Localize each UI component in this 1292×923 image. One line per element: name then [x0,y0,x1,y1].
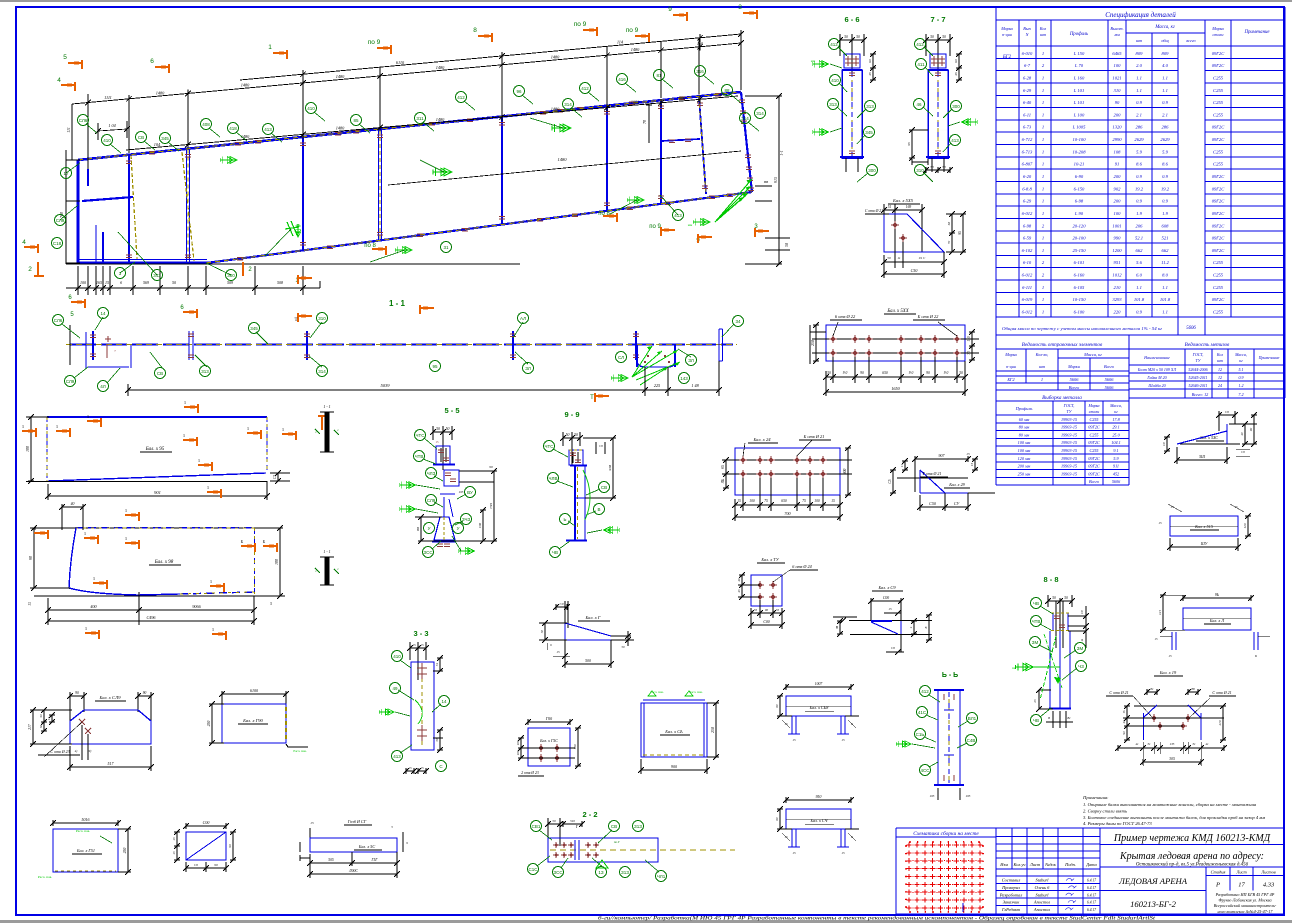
svg-text:20-120: 20-120 [1072,223,1086,228]
svg-text:2. Сварку стали взять: 2. Сварку стали взять [1083,808,1127,813]
svg-text:Примечание: Примечание [1244,30,1271,35]
svg-text:В1: В1 [1067,716,1071,720]
svg-text:100: 100 [1114,63,1122,68]
svg-text:Всероссийский машиностроитель-: Всероссийский машиностроитель- [1214,903,1277,908]
svg-text:Гозб Ø СГ: Гозб Ø СГ [347,819,367,824]
svg-text:15: 15 [172,837,176,841]
svg-text:1: 1 [207,485,209,490]
svg-text:50: 50 [446,427,450,431]
svg-text:4.33: 4.33 [1263,882,1275,889]
svg-text:09Г2С: 09Г2С [1212,236,1226,241]
svg-text:Фрунзе-Лабинская ул. Москва: Фрунзе-Лабинская ул. Москва [1218,898,1271,903]
svg-text:902: 902 [1114,186,1122,191]
svg-text:по 9: по 9 [368,39,381,46]
svg-text:4. Размеры даны по ГОСТ 26.47-: 4. Размеры даны по ГОСТ 26.47-73 [1083,821,1152,826]
svg-text:09Г2С: 09Г2С [1212,211,1226,216]
svg-text:Болт М20 х 50 109 ХЛ: Болт М20 х 50 109 ХЛ [1137,367,1176,372]
svg-text:1480: 1480 [436,117,445,122]
svg-text:135: 135 [1170,742,1175,746]
svg-text:б-012: б-012 [1022,273,1033,278]
svg-text:1.9: 1.9 [1162,211,1168,216]
svg-text:по 8: по 8 [364,243,376,249]
svg-text:С255: С255 [1213,149,1224,154]
svg-text:мм: мм [688,223,693,227]
svg-text:1.1: 1.1 [1162,76,1168,81]
svg-text:110: 110 [967,336,971,341]
svg-text:40: 40 [1240,432,1244,436]
svg-text:Изм: Изм [999,862,1008,867]
svg-text:286: 286 [1136,125,1144,130]
svg-text:б-7: б-7 [1024,63,1031,68]
svg-text:40: 40 [71,502,75,506]
svg-text:50: 50 [827,371,831,375]
svg-text:Вып: Вып [1023,26,1031,31]
svg-text:п-ции: п-ции [1002,32,1012,37]
svg-text:В: В [597,507,600,512]
svg-text:915: 915 [773,177,778,183]
svg-text:1: 1 [1042,310,1044,315]
svg-text:413: 413 [951,138,959,143]
svg-text:412: 412 [457,95,465,100]
svg-text:СЛ9: СЛ9 [66,379,75,384]
svg-text:95: 95 [432,364,438,369]
svg-text:990: 990 [1114,236,1122,241]
svg-text:3: 3 [738,4,742,11]
svg-text:ЧЛ1: ЧЛ1 [657,874,666,879]
svg-text:206: 206 [1136,223,1144,228]
svg-text:108: 108 [1114,149,1122,154]
svg-text:Проверил: Проверил [1001,885,1020,890]
svg-text:09Г2С: 09Г2С [1088,471,1100,476]
svg-text:300: 300 [952,104,960,109]
svg-text:11.2: 11.2 [1161,260,1169,265]
svg-text:С1С: С1С [528,867,538,872]
svg-text:Т: Т [294,318,297,323]
svg-text:6110: 6110 [396,60,405,65]
svg-text:15: 15 [792,851,796,855]
svg-text:19.2: 19.2 [1161,186,1170,191]
svg-text:410: 410 [103,138,111,143]
svg-text:15: 15 [966,452,970,456]
svg-text:1.1: 1.1 [1162,310,1168,315]
svg-text:Бал. х Г90: Бал. х Г90 [242,718,263,723]
svg-text:5Ш: 5Ш [1199,455,1206,459]
svg-text:Бал. х СЛ9: Бал. х СЛ9 [98,695,121,700]
svg-text:9 - 9: 9 - 9 [564,410,579,419]
svg-text:50: 50 [435,738,439,742]
svg-text:1: 1 [1042,112,1044,117]
svg-text:1: 1 [198,458,200,463]
svg-text:Расч. пов.: Расч. пов. [689,690,703,694]
svg-text:169: 169 [906,205,912,209]
svg-text:5016: 5016 [82,817,90,822]
svg-text:15: 15 [412,643,416,647]
svg-text:0.9: 0.9 [1162,199,1168,204]
svg-text:85: 85 [353,118,359,123]
svg-text:1: 1 [1042,186,1044,191]
svg-text:мм: мм [811,59,816,63]
svg-text:313: 313 [866,104,874,109]
svg-text:С00: С00 [763,620,769,624]
svg-text:б-713: б-713 [1022,149,1033,154]
svg-text:50: 50 [172,280,176,285]
svg-text:Л00С: Л00С [348,869,358,873]
svg-text:Марка: Марка [1087,403,1099,408]
svg-text:Апостол: Апостол [1033,900,1050,905]
svg-text:09Г2С: 09Г2С [1212,125,1226,130]
svg-text:Всего: Всего [1104,364,1114,369]
svg-text:11: 11 [897,256,900,260]
svg-text:L 1005: L 1005 [1072,125,1087,130]
svg-text:314: 314 [741,116,749,121]
svg-text:111: 111 [66,127,71,132]
svg-text:17: 17 [1238,882,1245,889]
svg-text:ЗЛ: ЗЛ [525,366,531,371]
svg-text:1: 1 [1042,51,1044,56]
svg-text:34: 34 [735,319,741,324]
svg-text:90: 90 [1115,100,1120,105]
svg-text:6 - 6: 6 - 6 [844,15,859,24]
svg-text:6.4.17: 6.4.17 [1087,893,1096,897]
svg-text:5.9: 5.9 [1162,149,1168,154]
svg-text:411: 411 [917,62,925,67]
svg-text:250: 250 [123,848,127,854]
svg-text:104.1: 104.1 [1111,440,1120,445]
svg-text:105: 105 [966,794,971,798]
svg-text:Бал. х С9: Бал. х С9 [877,585,896,590]
svg-text:Лист: Лист [1235,870,1246,875]
svg-text:1: 1 [1042,236,1044,241]
svg-text:46: 46 [916,102,922,107]
svg-text:210: 210 [1218,720,1222,725]
svg-text:1: 1 [268,44,272,51]
svg-text:6 отв Ø 24: 6 отв Ø 24 [792,564,811,569]
svg-text:343: 343 [153,273,161,278]
svg-text:Выборка металла: Выборка металла [1042,394,1082,401]
svg-text:п-ции: п-ции [1006,364,1016,369]
svg-text:9 0: 9 0 [843,371,848,375]
svg-text:1.1: 1.1 [1162,285,1168,290]
svg-text:Разработал: Разработал [999,892,1023,897]
svg-text:412: 412 [916,42,924,47]
svg-text:143: 143 [680,376,688,381]
svg-text:1.2: 1.2 [1239,383,1244,388]
svg-text:50: 50 [785,243,789,247]
svg-text:С96: С96 [478,522,482,528]
svg-text:96: 96 [516,89,522,94]
svg-text:Крытая ледовая арена по адресу: Крытая ледовая арена по адресу: [1119,851,1264,862]
svg-text:6-98: 6-98 [1075,199,1084,204]
svg-text:1: 1 [1042,174,1044,179]
svg-text:по 9: по 9 [626,27,639,34]
svg-text:165: 165 [96,280,102,285]
svg-text:41: 41 [1205,742,1209,746]
svg-text:2 отв Ø 23: 2 отв Ø 23 [521,771,539,775]
svg-text:N: N [1025,32,1029,37]
svg-text:ЗМ: ЗМ [1032,640,1039,645]
svg-text:505: 505 [328,858,334,862]
svg-text:1: 1 [1042,285,1044,290]
svg-text:510: 510 [570,819,575,823]
svg-text:ЧЛВ: ЧЛВ [549,476,558,481]
svg-text:С255: С255 [1213,260,1224,265]
svg-text:1: 1 [84,531,86,536]
svg-text:5039: 5039 [381,383,391,388]
svg-text:452: 452 [1113,471,1119,476]
svg-text:С00: С00 [203,820,210,825]
svg-text:700: 700 [784,511,791,516]
svg-text:120 мм: 120 мм [1018,456,1031,461]
svg-text:19903-15: 19903-15 [1061,432,1077,437]
svg-text:В: В [1048,716,1050,720]
svg-text:ГлРедакт: ГлРедакт [1001,907,1020,912]
svg-text:210: 210 [1114,285,1122,290]
svg-text:608: 608 [1162,223,1170,228]
svg-text:1 48: 1 48 [691,383,699,388]
svg-text:9066: 9066 [192,604,201,609]
svg-text:25-150: 25-150 [1072,248,1086,253]
svg-text:9: 9 [668,6,672,13]
svg-text:50: 50 [574,433,578,437]
svg-text:500: 500 [585,659,591,663]
svg-text:09Г2С: 09Г2С [1212,297,1226,302]
svg-text:91 С: 91 С [919,256,926,260]
svg-text:1З: 1З [598,870,604,875]
svg-text:L 150: L 150 [1073,51,1085,56]
svg-text:1: 1 [125,508,127,513]
svg-text:С255: С255 [1213,285,1224,290]
svg-text:Кол: Кол [1216,352,1223,357]
svg-text:С0: С0 [1241,450,1245,454]
svg-text:1: 1 [1042,76,1044,81]
svg-text:19903-15: 19903-15 [1061,448,1077,453]
svg-text:7: 7 [114,349,116,353]
svg-text:БГ2: БГ2 [1002,55,1012,60]
svg-text:Расч. пов.: Расч. пов. [293,749,307,753]
svg-text:СЛ: СЛ [618,355,624,360]
svg-text:650: 650 [882,371,888,375]
svg-text:09Г2С: 09Г2С [1212,137,1226,142]
svg-text:С18: С18 [53,241,62,246]
svg-text:С255: С255 [1213,162,1224,167]
svg-text:15: 15 [888,607,892,611]
svg-text:15: 15 [1122,710,1126,714]
svg-text:Расч. пов.: Расч. пов. [650,690,664,694]
svg-text:1: 1 [1042,88,1044,93]
svg-text:413: 413 [674,213,682,218]
svg-text:225: 225 [654,383,660,388]
svg-text:Бал. х 24: Бал. х 24 [752,437,771,442]
svg-text:314: 314 [756,111,764,116]
svg-text:ЗСС: ЗСС [553,870,563,875]
svg-text:286: 286 [1162,125,1170,130]
svg-text:0.9: 0.9 [1162,100,1168,105]
svg-text:19903-15: 19903-15 [1061,464,1077,469]
svg-text:3293: 3293 [1112,297,1122,302]
svg-text:314: 314 [318,369,326,374]
svg-text:662: 662 [1162,248,1170,253]
svg-text:6.4.17: 6.4.17 [1087,908,1096,912]
svg-text:55: 55 [776,608,780,612]
svg-text:95: 95 [958,231,962,235]
svg-text:Б отв Ø 22: Б отв Ø 22 [917,314,940,319]
svg-text:ЧВ: ЧВ [1033,718,1039,723]
svg-text:50: 50 [887,256,891,260]
svg-text:Б: Б [34,526,37,531]
svg-text:90: 90 [1249,428,1253,432]
svg-text:314: 314 [564,102,572,107]
svg-text:ЧЗ: ЧЗ [1078,664,1084,669]
svg-text:4: 4 [57,77,61,84]
svg-text:БГ2: БГ2 [1006,377,1015,382]
svg-text:Кол.уч: Кол.уч [1013,862,1026,867]
svg-text:Г00: Г00 [545,716,552,721]
svg-text:б-012: б-012 [1022,211,1033,216]
svg-text:300: 300 [868,168,876,173]
svg-text:100: 100 [25,446,30,452]
svg-text:шт: шт [1217,358,1223,363]
svg-text:950: 950 [816,795,822,799]
svg-text:9.1: 9.1 [1113,448,1118,453]
svg-text:09Г2С: 09Г2С [1212,63,1226,68]
svg-text:ЧТС: ЧТС [416,433,426,438]
svg-text:410: 410 [307,106,315,111]
svg-text:по 9: по 9 [649,224,661,230]
svg-text:200 мм: 200 мм [1018,464,1031,469]
svg-text:521: 521 [1162,236,1169,241]
svg-text:5 - 5: 5 - 5 [444,406,459,415]
svg-text:по 9: по 9 [574,21,587,28]
svg-text:Бал. х СЧ: Бал. х СЧ [809,818,828,823]
svg-text:С255: С255 [1213,310,1224,315]
svg-text:С0: С0 [1162,442,1166,446]
svg-text:С отв Ø 21: С отв Ø 21 [1212,690,1231,695]
svg-text:49: 49 [392,686,398,691]
svg-text:15: 15 [105,280,109,285]
svg-text:Бал. х 5Х5: Бал. х 5Х5 [892,198,914,203]
svg-text:91: 91 [1115,162,1120,167]
svg-text:Марка: Марка [1000,26,1013,31]
svg-text:11: 11 [900,464,904,467]
svg-text:45: 45 [868,72,872,76]
svg-text:1001: 1001 [1112,223,1121,228]
svg-text:50: 50 [566,433,570,437]
svg-text:15: 15 [172,851,176,855]
svg-text:Бал. х 515: Бал. х 515 [1194,524,1213,529]
svg-text:29.1: 29.1 [1112,425,1119,430]
svg-text:С0: С0 [1080,610,1084,614]
svg-text:0.9: 0.9 [1162,174,1168,179]
svg-text:65: 65 [947,222,951,226]
svg-text:С отв Ø 21: С отв Ø 21 [1109,690,1128,695]
svg-text:1: 1 [1042,100,1044,105]
svg-text:1007: 1007 [815,682,824,686]
svg-text:31: 31 [1147,742,1151,746]
svg-text:5606: 5606 [1070,377,1080,382]
svg-text:90: 90 [228,844,232,848]
svg-text:З1З: З1З [634,824,642,829]
svg-text:412: 412 [830,42,838,47]
svg-text:С50: С50 [911,268,918,273]
svg-text:1: 1 [247,426,249,431]
svg-text:1.1: 1.1 [1136,76,1142,81]
svg-text:15: 15 [1168,654,1172,658]
svg-text:907: 907 [939,453,946,458]
svg-text:809: 809 [1136,51,1144,56]
svg-text:10-208: 10-208 [1072,149,1086,154]
svg-text:Листов: Листов [1260,870,1275,875]
svg-text:250: 250 [811,340,815,346]
svg-text:Расч. пов.: Расч. пов. [38,875,52,879]
svg-text:410: 410 [831,78,839,83]
svg-text:8.6: 8.6 [1136,162,1142,167]
svg-text:51: 51 [435,663,439,667]
svg-text:250 мм: 250 мм [1018,471,1031,476]
svg-text:6-150: 6-150 [1074,186,1085,191]
svg-text:С0: С0 [560,602,564,606]
svg-text:С255: С255 [1213,100,1224,105]
svg-text:1: 1 [1042,199,1044,204]
svg-text:С0: С0 [599,444,603,448]
svg-text:1-1: 1-1 [779,150,784,155]
svg-text:105: 105 [459,490,464,494]
svg-text:общ: общ [1161,38,1169,43]
svg-text:1: 1 [87,414,89,419]
svg-text:75: 75 [802,499,806,503]
svg-text:50: 50 [540,630,544,634]
svg-text:1012: 1012 [1112,273,1122,278]
svg-text:09Г2С: 09Г2С [1088,464,1100,469]
svg-text:Гайка М 20: Гайка М 20 [1146,375,1166,380]
svg-text:Т: Т [590,395,594,401]
svg-text:1: 1 [183,433,185,438]
svg-text:4СС: 4СС [920,768,930,773]
svg-text:2990: 2990 [1112,137,1122,142]
svg-text:413: 413 [393,754,401,759]
svg-text:1: 1 [1042,149,1044,154]
svg-text:Ведомость отправочных элементо: Ведомость отправочных элементов [1022,341,1103,348]
svg-text:Staburl: Staburl [1036,878,1050,883]
svg-text:Наименование: Наименование [1143,355,1170,360]
svg-text:15: 15 [1155,637,1159,641]
svg-text:50: 50 [436,427,440,431]
svg-text:Бал. х ТУ: Бал. х ТУ [760,557,779,562]
svg-text:200: 200 [1114,199,1122,204]
svg-text:55: 55 [754,608,758,612]
svg-text:31: 31 [1192,742,1196,746]
svg-text:б-010: б-010 [1022,51,1033,56]
svg-text:СЛ6: СЛ6 [79,118,88,123]
svg-text:6.0: 6.0 [1136,273,1142,278]
svg-text:L 160: L 160 [1073,76,1085,81]
svg-text:220: 220 [1114,310,1122,315]
svg-text:№док: №док [1044,862,1057,867]
svg-text:ЧТВ: ЧТВ [415,454,424,459]
svg-text:5.6: 5.6 [1136,260,1142,265]
svg-text:60: 60 [954,59,958,63]
svg-text:L 100: L 100 [1073,112,1085,117]
svg-text:мм: мм [1113,32,1120,37]
svg-text:1.1: 1.1 [1162,88,1168,93]
svg-text:100: 100 [573,744,577,749]
svg-text:по Г: по Г [614,840,620,844]
svg-text:6: 6 [150,58,154,65]
svg-text:412: 412 [921,689,929,694]
svg-text:15: 15 [1158,521,1162,525]
svg-text:5.9: 5.9 [1136,149,1142,154]
svg-text:200: 200 [1114,174,1122,179]
svg-text:СЛ6: СЛ6 [54,318,63,323]
